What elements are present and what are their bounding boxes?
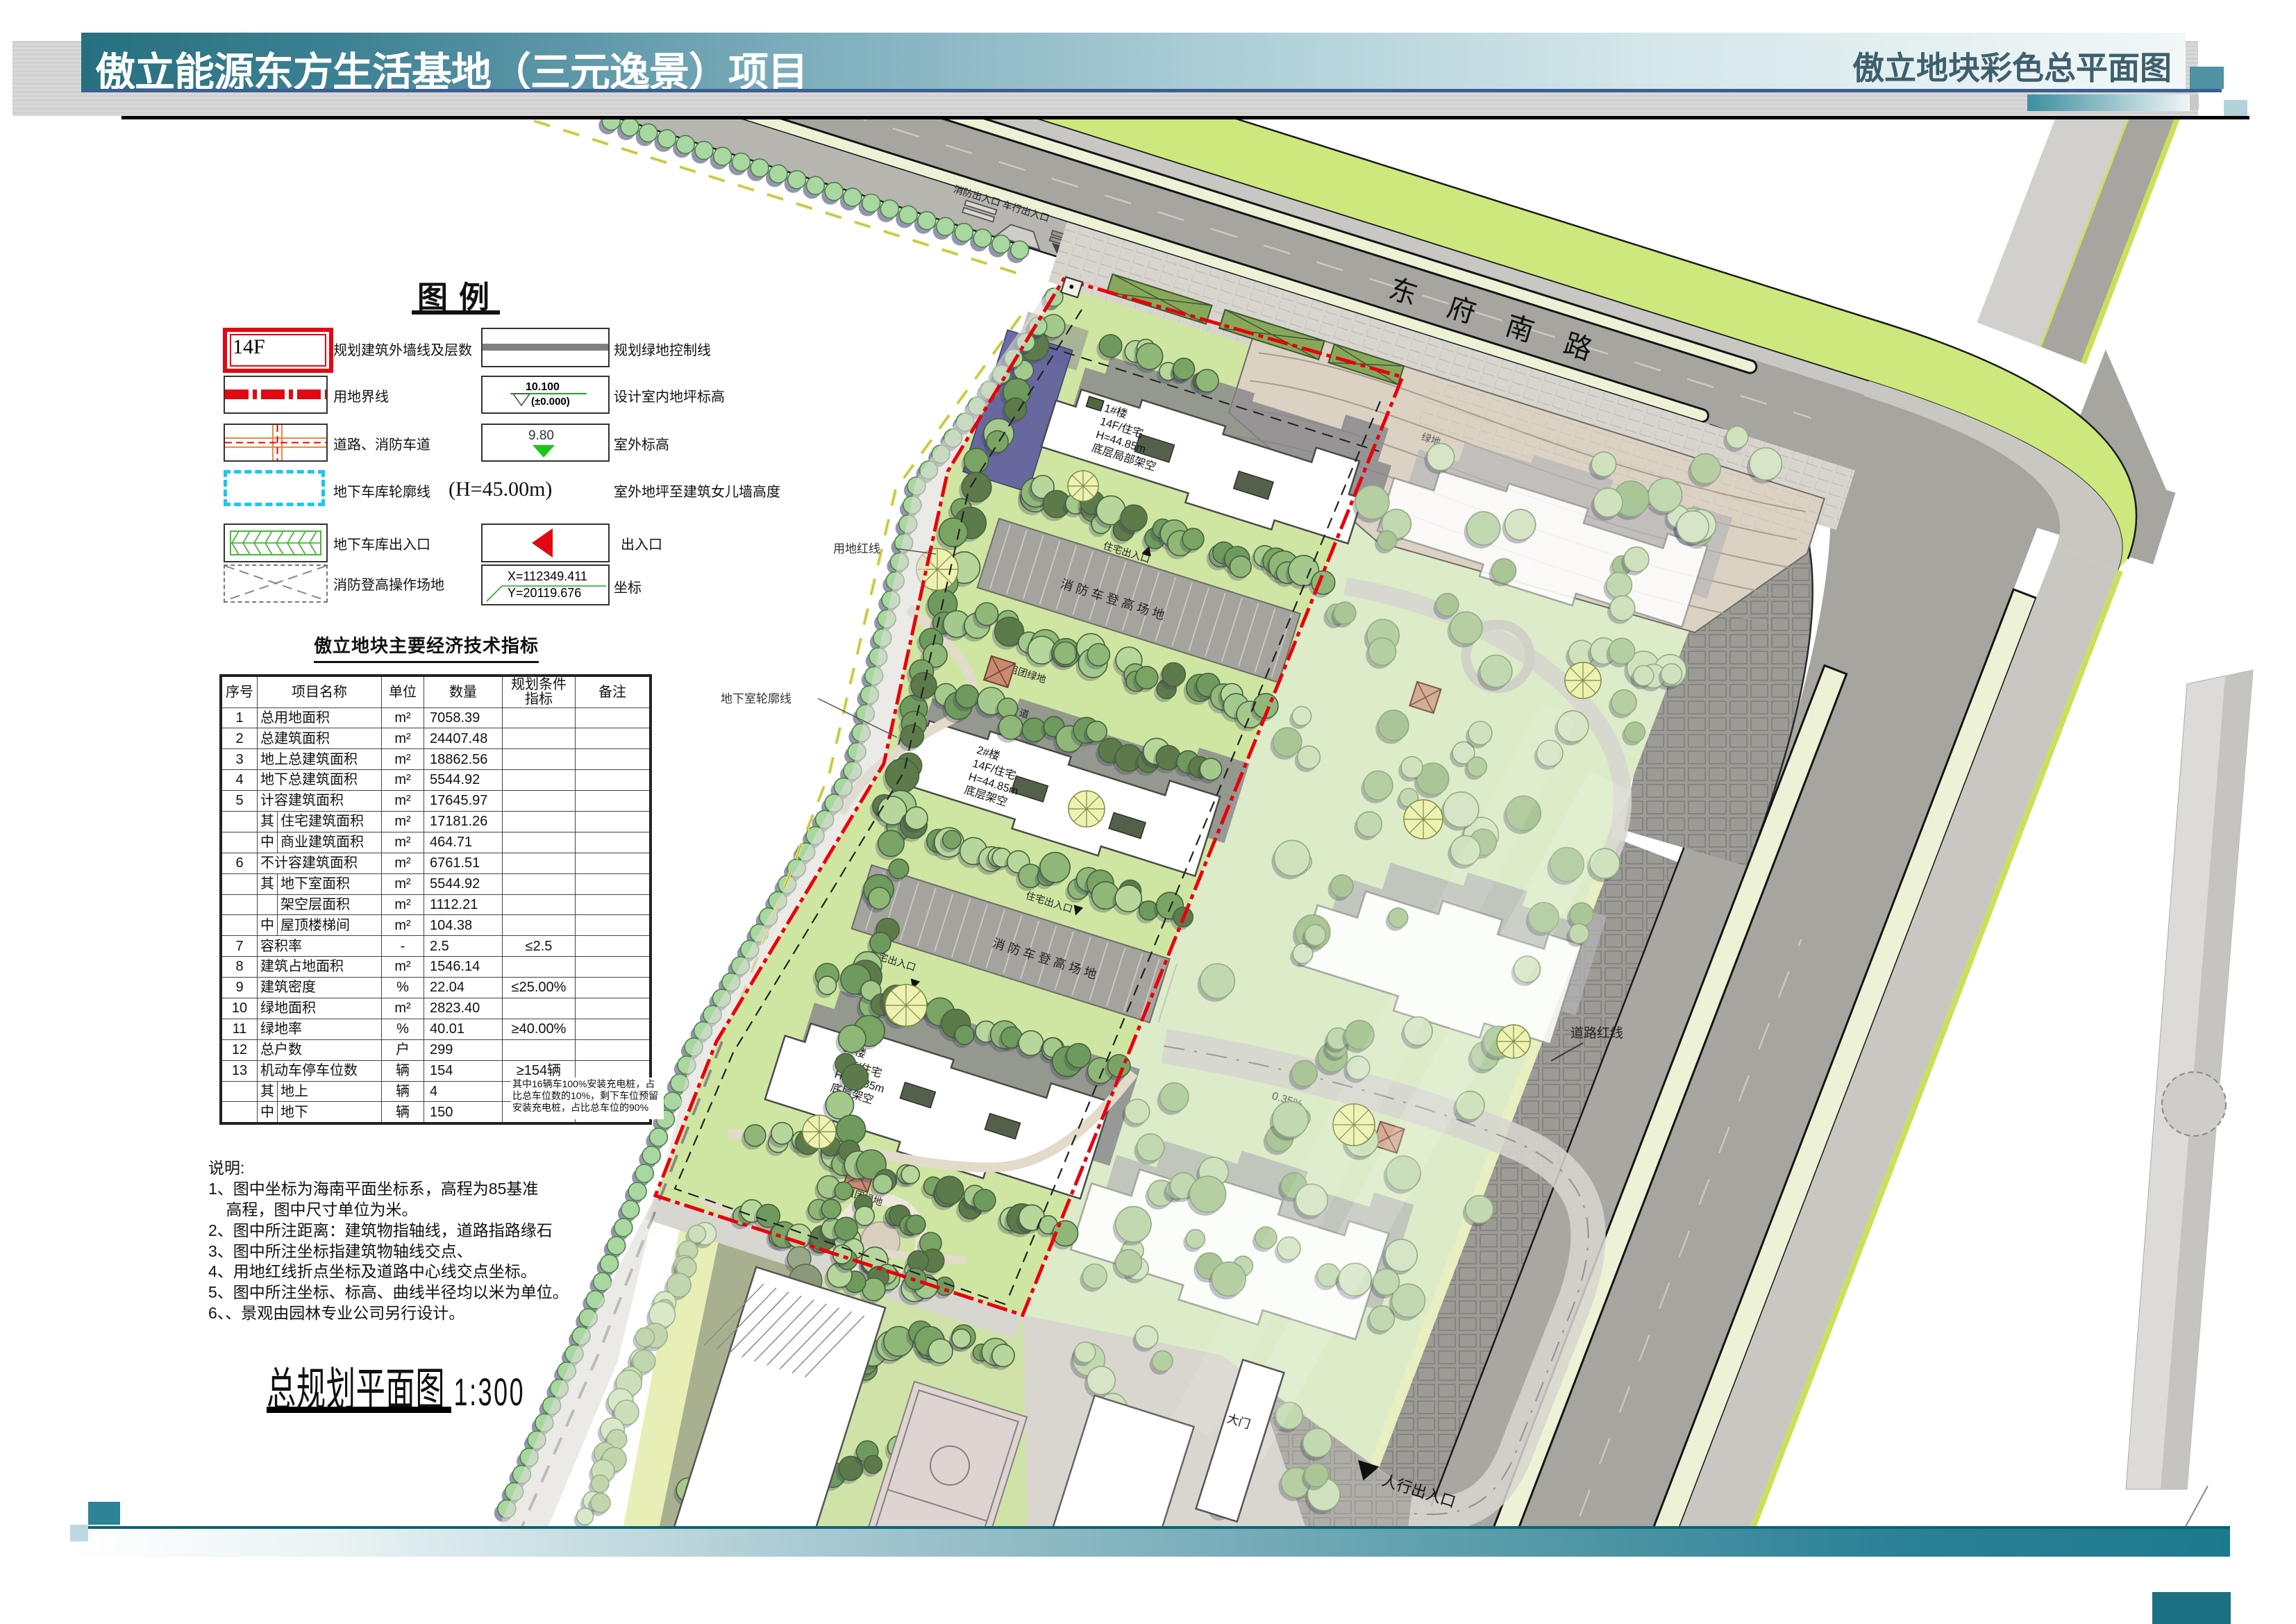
svg-text:(±0.000): (±0.000) [531, 396, 570, 408]
svg-text:地下室轮廓线: 地下室轮廓线 [721, 692, 791, 705]
svg-text:用地红线: 用地红线 [833, 542, 880, 555]
svg-text:10.100: 10.100 [526, 381, 560, 393]
svg-text:道路红线: 道路红线 [1570, 1026, 1623, 1041]
svg-text:9.80: 9.80 [528, 428, 554, 443]
svg-text:X=112349.411: X=112349.411 [508, 569, 587, 583]
svg-text:Y=20119.676: Y=20119.676 [508, 586, 581, 600]
